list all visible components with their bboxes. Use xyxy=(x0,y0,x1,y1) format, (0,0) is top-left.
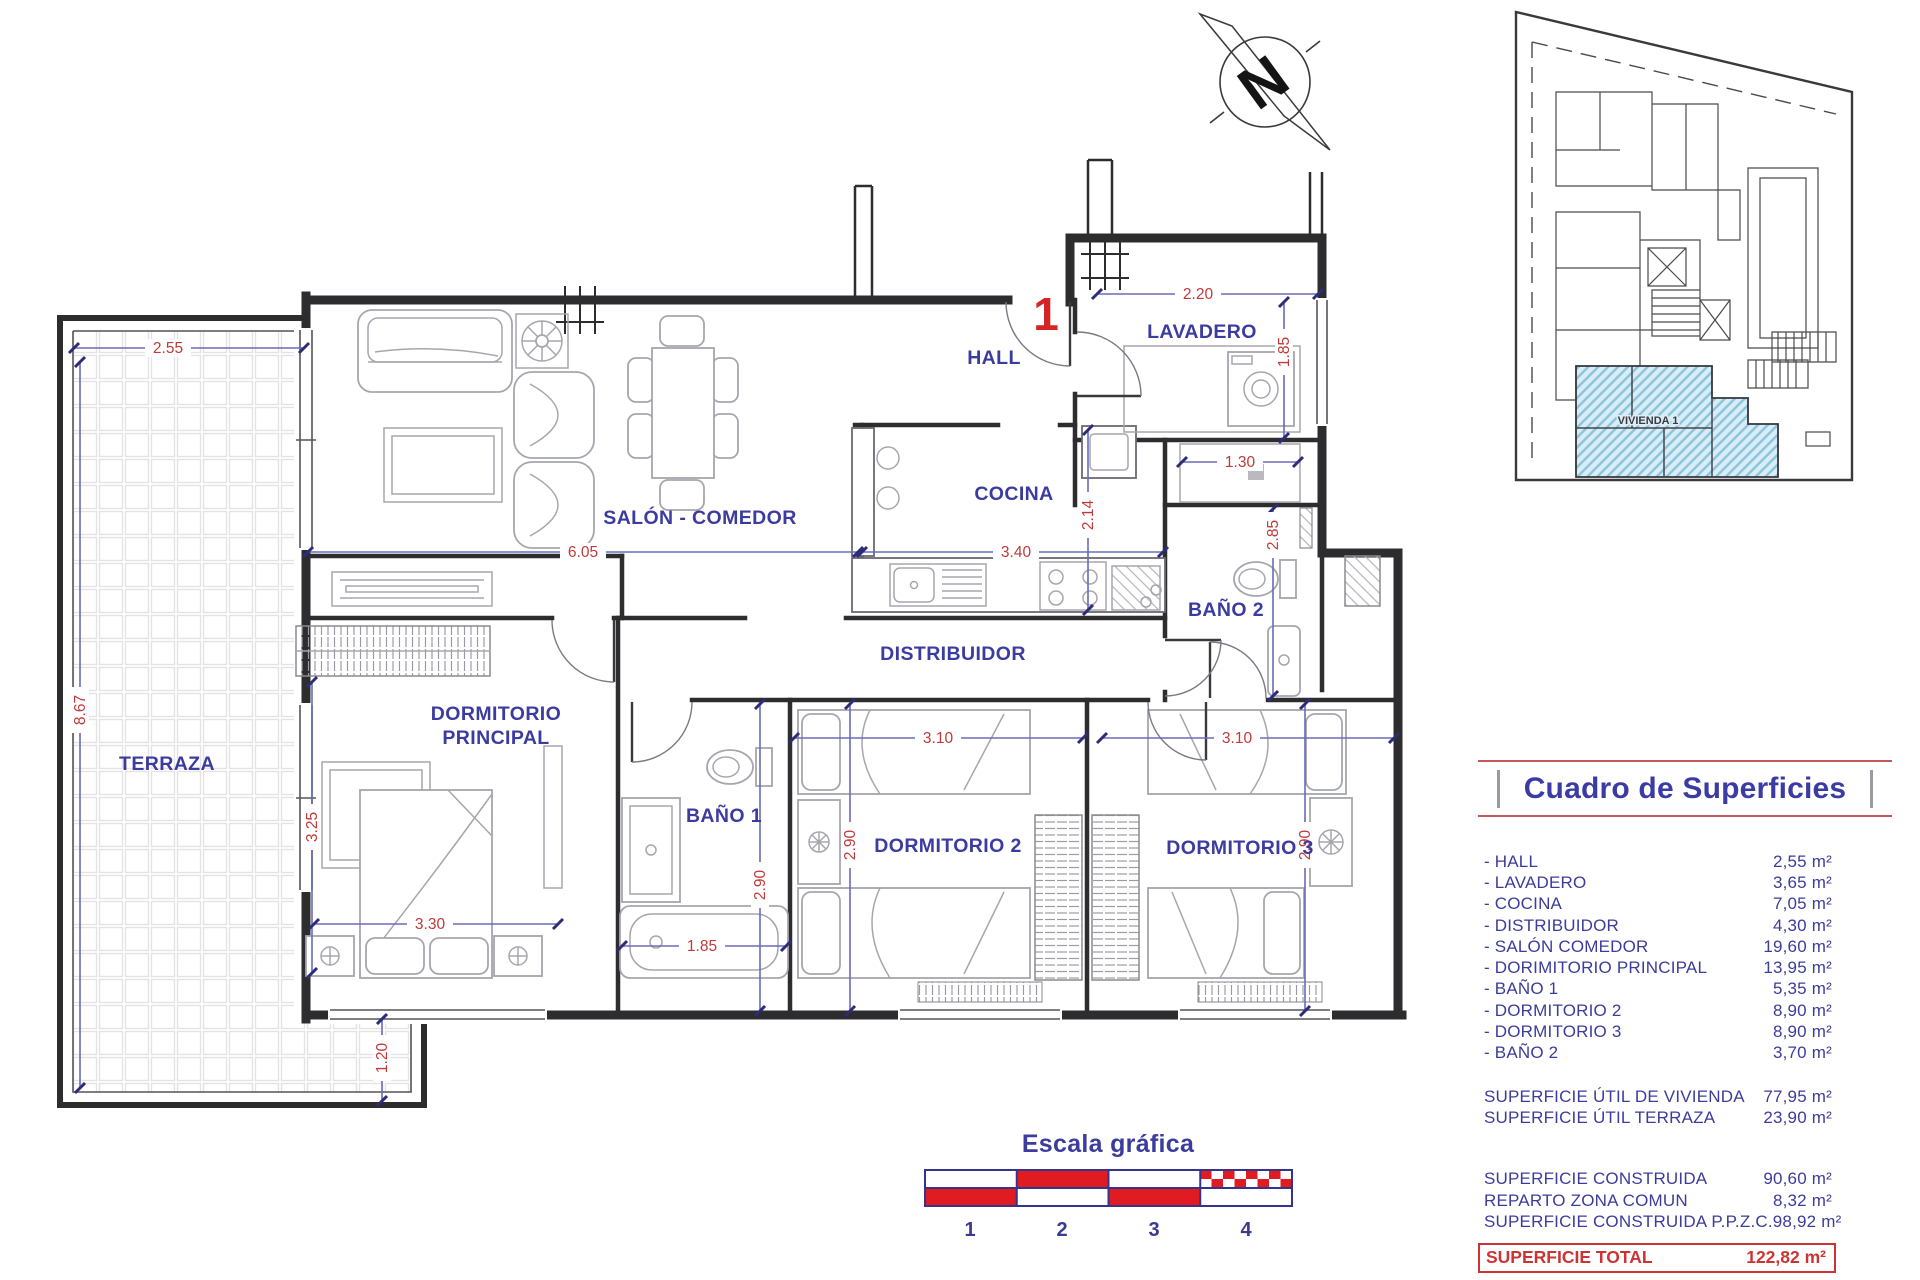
row-name: - COCINA xyxy=(1484,894,1562,914)
row-name: - BAÑO 1 xyxy=(1484,979,1558,999)
total-area-row: SUPERFICIE TOTAL 122,82 m² xyxy=(1478,1243,1836,1273)
row-value: 8,90 m² xyxy=(1773,1022,1832,1042)
dim-bano1-ancho: 1.85 xyxy=(687,938,717,955)
row-name: SUPERFICIE ÚTIL DE VIVIENDA xyxy=(1484,1087,1745,1107)
row-name: - DORMITORIO 2 xyxy=(1484,1001,1622,1021)
row-value: 98,92 m² xyxy=(1773,1212,1842,1232)
room-label-dorm2: DORMITORIO 2 xyxy=(874,835,1021,857)
table-row: SUPERFICIE CONSTRUIDA P.P.Z.C.98,92 m² xyxy=(1484,1211,1832,1232)
table-row: - SALÓN COMEDOR19,60 m² xyxy=(1484,936,1832,957)
unit-number: 1 xyxy=(1033,288,1059,340)
table-row: - DORMITORIO 28,90 m² xyxy=(1484,1000,1832,1021)
built-area-list: SUPERFICIE CONSTRUIDA90,60 m² REPARTO ZO… xyxy=(1484,1169,1832,1233)
room-label-dorm3: DORMITORIO 3 xyxy=(1166,837,1313,859)
table-row: - LAVADERO3,65 m² xyxy=(1484,872,1832,893)
dim-cocina-ancho: 3.40 xyxy=(1001,544,1032,561)
dim-salon-ancho: 6.05 xyxy=(568,544,598,561)
north-compass: N xyxy=(1200,14,1330,150)
dim-lavadero-ancho: 2.20 xyxy=(1183,286,1214,303)
dim-dorm3-ancho: 3.10 xyxy=(1222,730,1253,747)
room-label-cocina: COCINA xyxy=(974,483,1053,505)
scale-bar: Escala gráfica 1 2 3 4 xyxy=(925,1130,1292,1241)
dim-armario-ancho: 1.30 xyxy=(1225,454,1256,471)
room-label-terraza: TERRAZA xyxy=(119,753,215,775)
row-value: 77,95 m² xyxy=(1763,1087,1832,1107)
row-name: - LAVADERO xyxy=(1484,873,1586,893)
room-label-lavadero: LAVADERO xyxy=(1147,321,1257,343)
room-label-salon: SALÓN - COMEDOR xyxy=(603,505,796,529)
row-name: - HALL xyxy=(1484,852,1538,872)
total-name: SUPERFICIE TOTAL xyxy=(1486,1247,1653,1268)
scale-tick-3: 3 xyxy=(1148,1219,1159,1241)
table-row: REPARTO ZONA COMUN8,32 m² xyxy=(1484,1190,1832,1211)
room-label-bano1: BAÑO 1 xyxy=(686,804,762,827)
row-value: 8,32 m² xyxy=(1773,1191,1832,1211)
row-name: SUPERFICIE ÚTIL TERRAZA xyxy=(1484,1108,1715,1128)
floorplan-page: { "plan": { "unit_number": "1", "rooms":… xyxy=(0,0,1920,1280)
dim-cocina-alto: 2.14 xyxy=(1080,500,1097,531)
table-row: - DISTRIBUIDOR4,30 m² xyxy=(1484,915,1832,936)
row-name: - BAÑO 2 xyxy=(1484,1043,1558,1063)
table-title-row: Cuadro de Superficies xyxy=(1478,762,1892,815)
row-value: 5,35 m² xyxy=(1773,979,1832,999)
site-plan: VIVIENDA 1 xyxy=(1516,12,1852,480)
dim-dorm2-ancho: 3.10 xyxy=(923,730,954,747)
useful-area-list: SUPERFICIE ÚTIL DE VIVIENDA77,95 m² SUPE… xyxy=(1484,1086,1832,1129)
terraza-area xyxy=(60,318,424,1105)
row-name: - DORIMITORIO PRINCIPAL xyxy=(1484,958,1707,978)
dim-dorm-ppal-alto: 3.25 xyxy=(304,812,321,842)
title-bar-right xyxy=(1870,770,1873,808)
row-value: 2,55 m² xyxy=(1773,852,1832,872)
row-name: SUPERFICIE CONSTRUIDA P.P.Z.C. xyxy=(1484,1212,1773,1232)
table-row: - BAÑO 15,35 m² xyxy=(1484,979,1832,1000)
row-value: 7,05 m² xyxy=(1773,894,1832,914)
room-label-bano2: BAÑO 2 xyxy=(1188,598,1264,621)
room-label-dorm-ppal-2: PRINCIPAL xyxy=(442,727,549,749)
row-name: REPARTO ZONA COMUN xyxy=(1484,1191,1688,1211)
table-row: - HALL2,55 m² xyxy=(1484,851,1832,872)
dim-bano2-alto: 2.85 xyxy=(1265,520,1282,550)
scale-tick-4: 4 xyxy=(1240,1219,1252,1241)
row-value: 13,95 m² xyxy=(1763,958,1832,978)
room-label-distribuidor: DISTRIBUIDOR xyxy=(880,643,1026,665)
table-row: - DORMITORIO 38,90 m² xyxy=(1484,1021,1832,1042)
room-area-list: - HALL2,55 m² - LAVADERO3,65 m² - COCINA… xyxy=(1484,851,1832,1064)
table-row: - COCINA7,05 m² xyxy=(1484,894,1832,915)
row-value: 3,65 m² xyxy=(1773,873,1832,893)
row-value: 8,90 m² xyxy=(1773,1001,1832,1021)
row-name: - DISTRIBUIDOR xyxy=(1484,916,1619,936)
table-title: Cuadro de Superficies xyxy=(1524,772,1847,806)
bano2-furniture xyxy=(1234,556,1380,696)
row-name: - DORMITORIO 3 xyxy=(1484,1022,1622,1042)
total-value: 122,82 m² xyxy=(1746,1247,1826,1268)
row-name: SUPERFICIE CONSTRUIDA xyxy=(1484,1169,1707,1189)
scale-tick-1: 1 xyxy=(964,1219,975,1241)
row-value: 4,30 m² xyxy=(1773,916,1832,936)
dim-lavadero-alto: 1.85 xyxy=(1276,337,1293,367)
dim-dorm2-alto: 2.90 xyxy=(842,830,859,861)
room-label-hall: HALL xyxy=(967,347,1021,369)
table-row: SUPERFICIE ÚTIL DE VIVIENDA77,95 m² xyxy=(1484,1086,1832,1107)
row-value: 23,90 m² xyxy=(1763,1108,1832,1128)
table-row: SUPERFICIE CONSTRUIDA90,60 m² xyxy=(1484,1169,1832,1190)
site-highlight-label: VIVIENDA 1 xyxy=(1618,415,1679,427)
dim-bano1-alto: 2.90 xyxy=(752,870,769,901)
row-name: - SALÓN COMEDOR xyxy=(1484,937,1649,957)
row-value: 90,60 m² xyxy=(1763,1169,1832,1189)
table-rule-bottom xyxy=(1478,815,1892,817)
salon-furniture xyxy=(332,310,738,606)
surface-table: Cuadro de Superficies - HALL2,55 m² - LA… xyxy=(1478,760,1892,1273)
row-value: 19,60 m² xyxy=(1763,937,1832,957)
dim-terraza-bajo: 1.20 xyxy=(374,1043,391,1074)
scale-bar-title: Escala gráfica xyxy=(1022,1130,1195,1158)
dim-dorm-ppal-ancho: 3.30 xyxy=(415,916,446,933)
scale-tick-2: 2 xyxy=(1056,1219,1067,1241)
table-row: - BAÑO 23,70 m² xyxy=(1484,1043,1832,1064)
dim-terraza-ancho: 2.55 xyxy=(153,340,183,357)
dim-terraza-alto: 8.67 xyxy=(72,695,89,725)
row-value: 3,70 m² xyxy=(1773,1043,1832,1063)
table-row: - DORIMITORIO PRINCIPAL13,95 m² xyxy=(1484,957,1832,978)
title-bar-left xyxy=(1497,770,1500,808)
cocina-furniture xyxy=(852,426,1165,612)
table-row: SUPERFICIE ÚTIL TERRAZA23,90 m² xyxy=(1484,1107,1832,1128)
room-label-dorm-ppal-1: DORMITORIO xyxy=(431,703,561,725)
